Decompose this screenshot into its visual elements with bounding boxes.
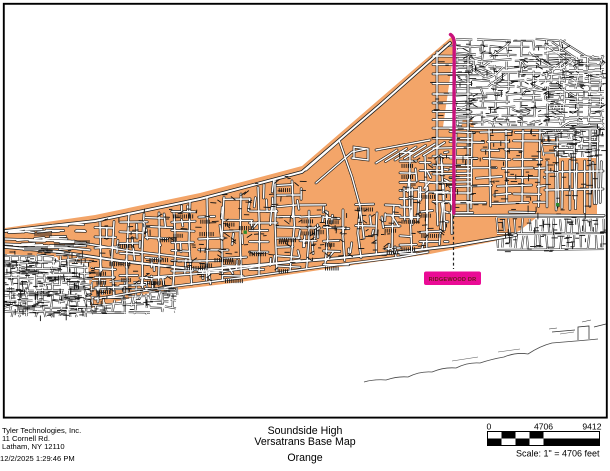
svg-text:9412: 9412 — [582, 422, 601, 432]
svg-text:Scale: 1" = 4706 feet: Scale: 1" = 4706 feet — [516, 449, 600, 459]
svg-text:0: 0 — [487, 422, 492, 432]
svg-text:RIDGEWOOD DR: RIDGEWOOD DR — [429, 277, 477, 283]
svg-text:4706: 4706 — [534, 422, 553, 432]
